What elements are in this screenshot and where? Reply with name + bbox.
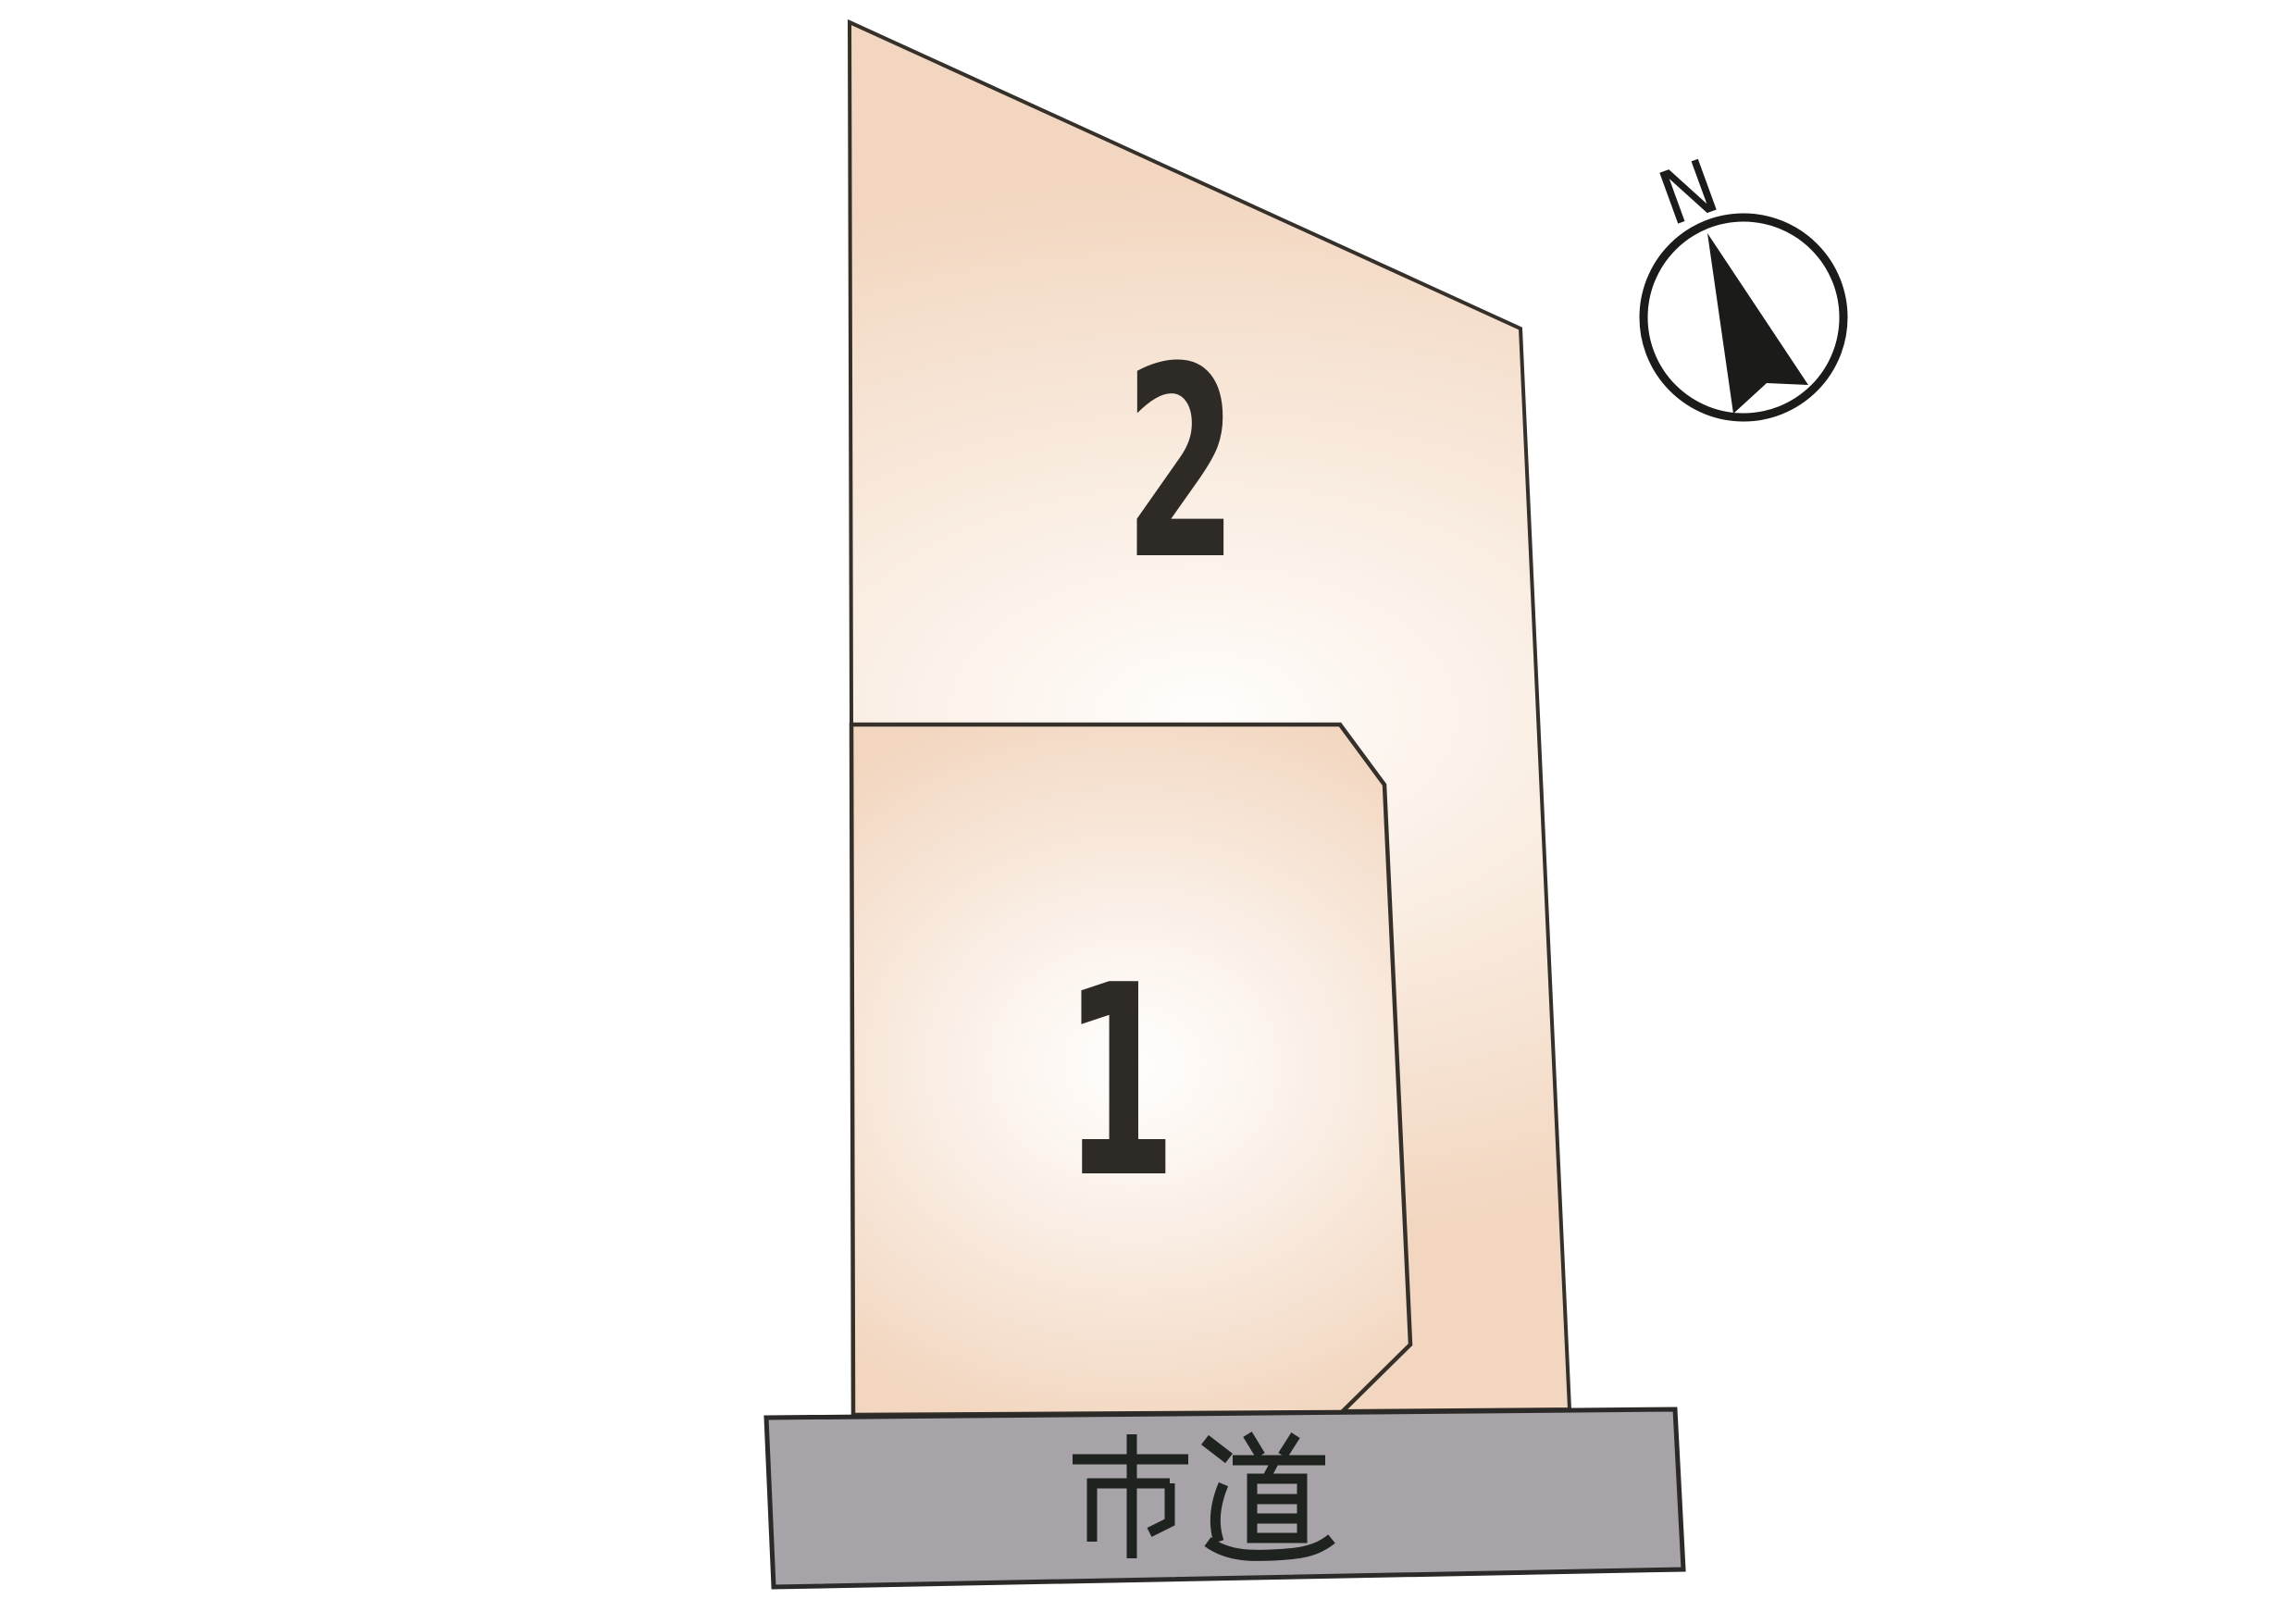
compass-needle-icon: [1707, 233, 1808, 414]
compass-n-label: N: [1648, 143, 1730, 242]
site-plan-svg: 2 1: [0, 0, 2296, 1624]
compass: N: [1644, 143, 1843, 417]
road-shape: [766, 1409, 1683, 1587]
site-plan: 2 1: [0, 0, 2296, 1624]
lot2-number-label: 2: [1124, 311, 1238, 618]
lot1-number-label: 1: [1063, 929, 1177, 1236]
